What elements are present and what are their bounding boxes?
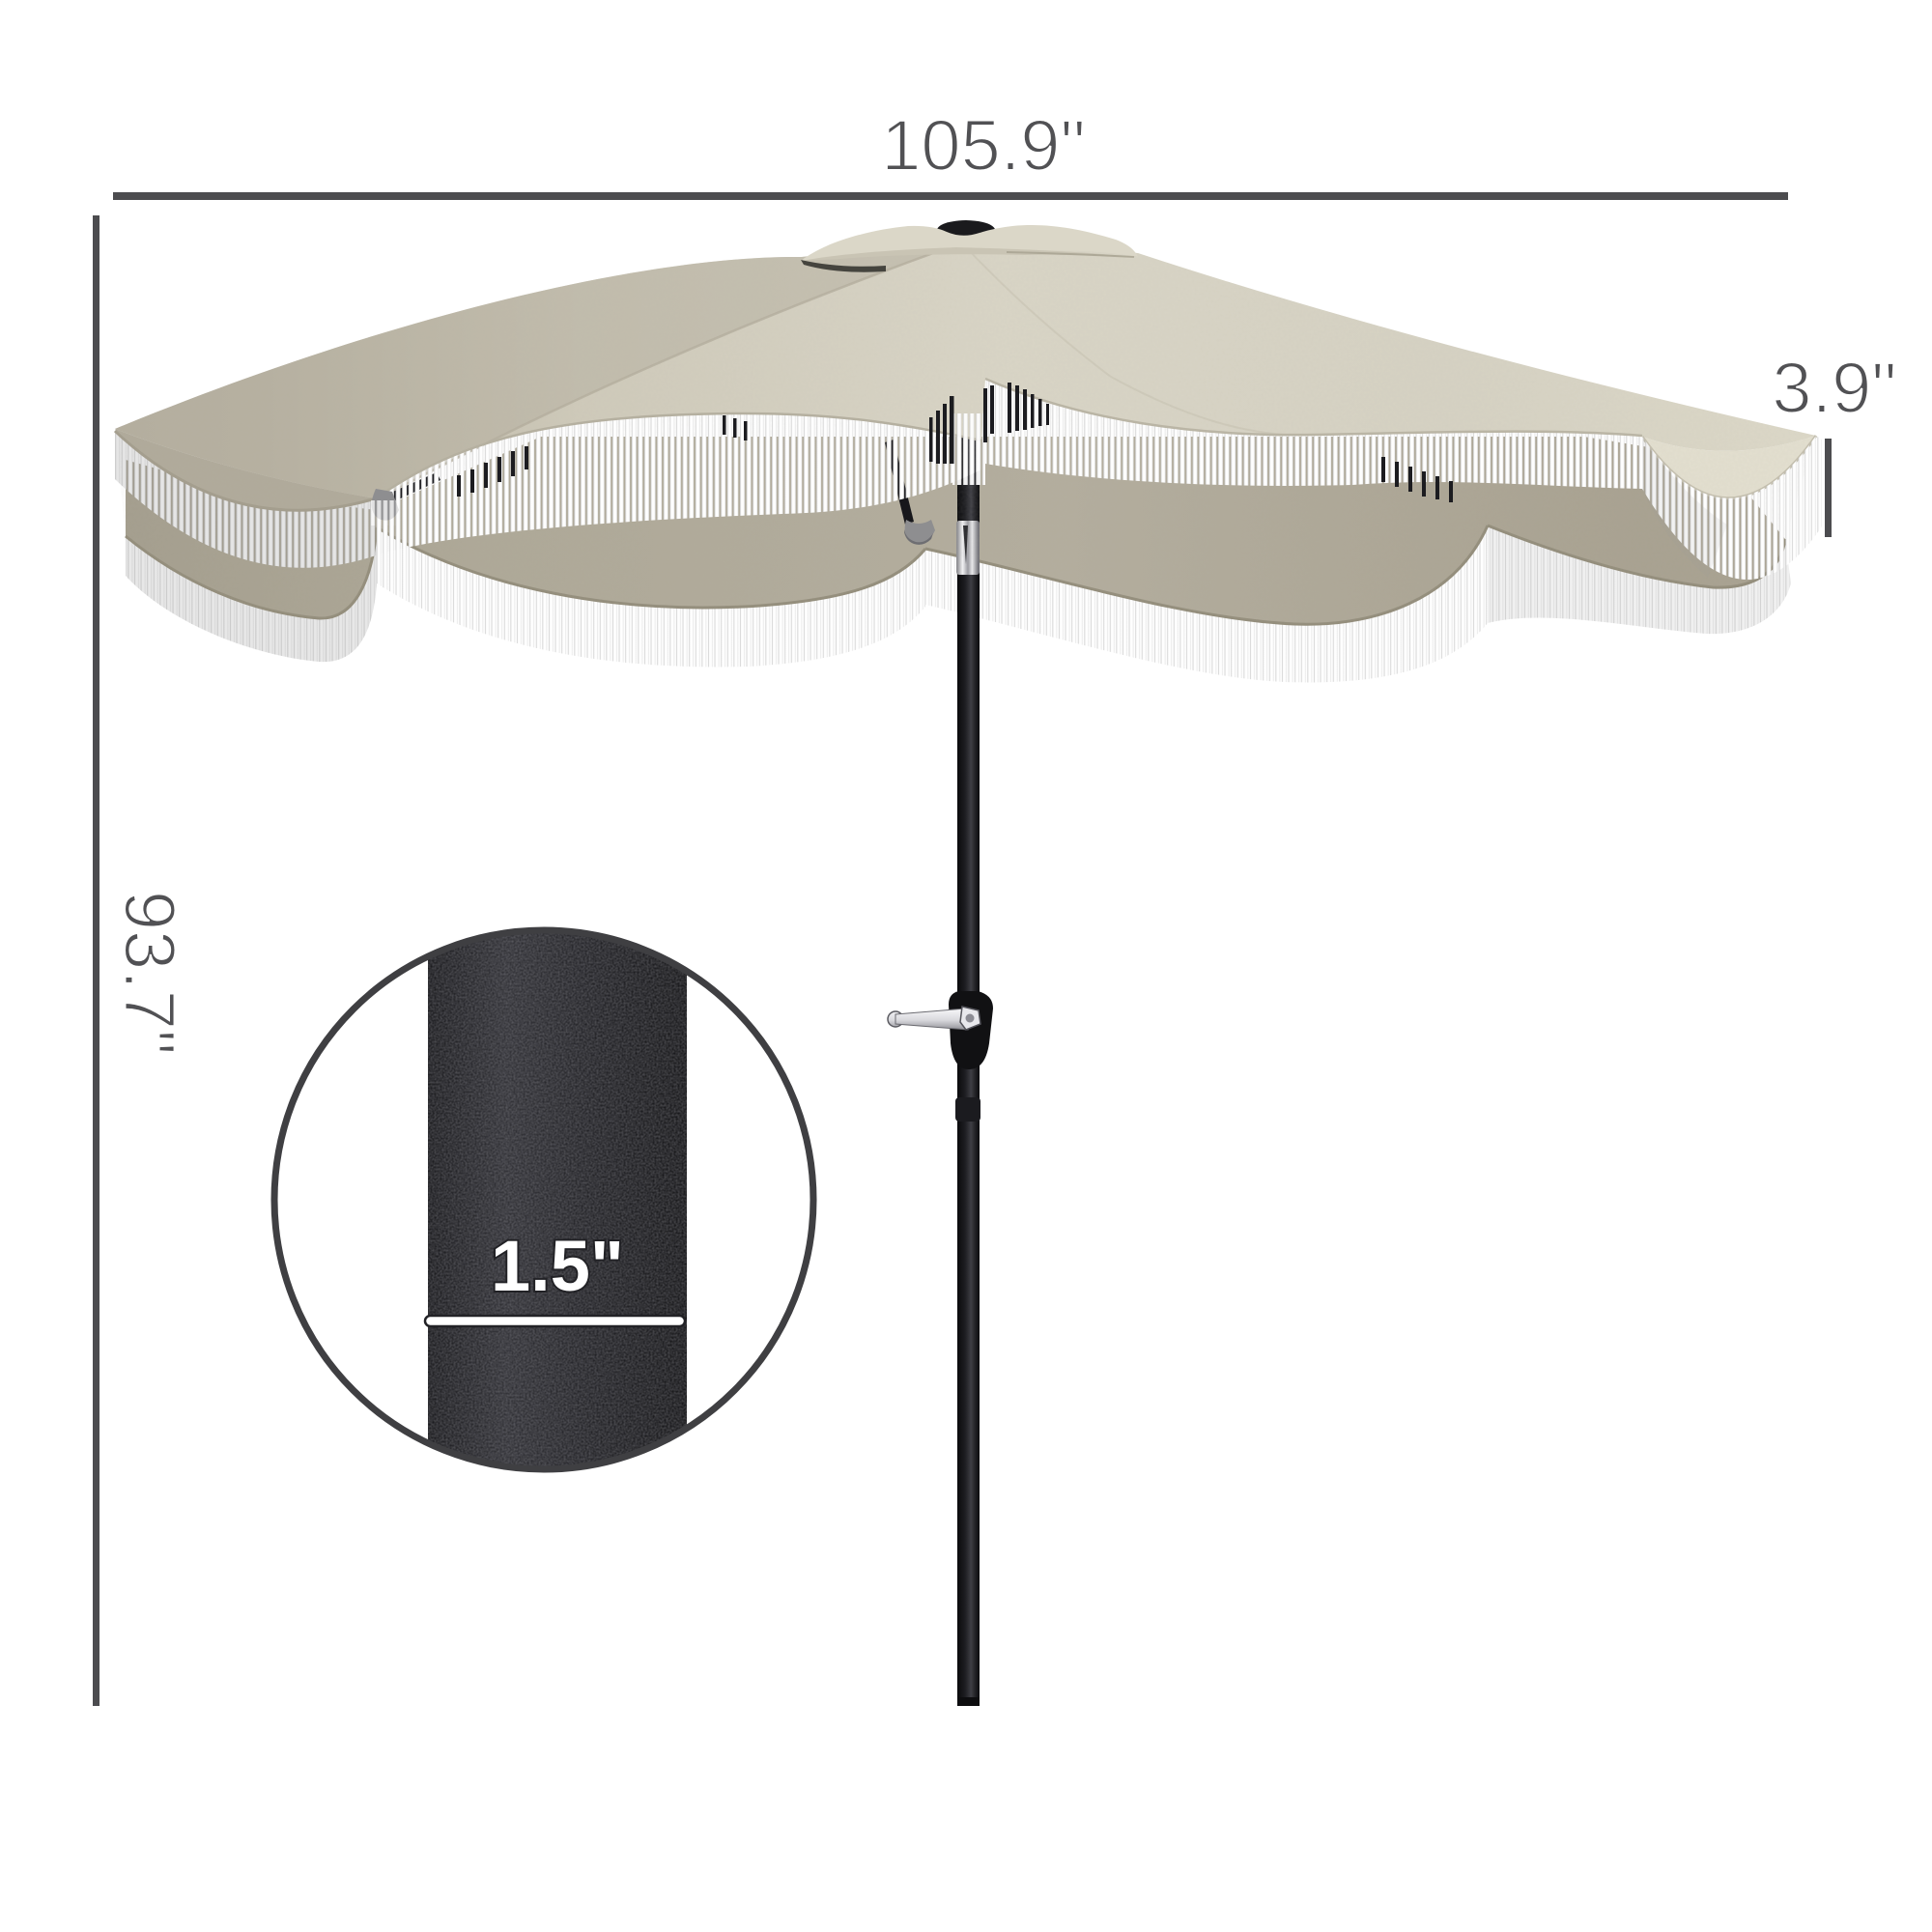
svg-text:105.9": 105.9"	[881, 105, 1085, 185]
svg-text:1.5": 1.5"	[491, 1226, 624, 1306]
svg-text:93.7": 93.7"	[110, 891, 190, 1055]
svg-text:3.9": 3.9"	[1772, 348, 1896, 428]
